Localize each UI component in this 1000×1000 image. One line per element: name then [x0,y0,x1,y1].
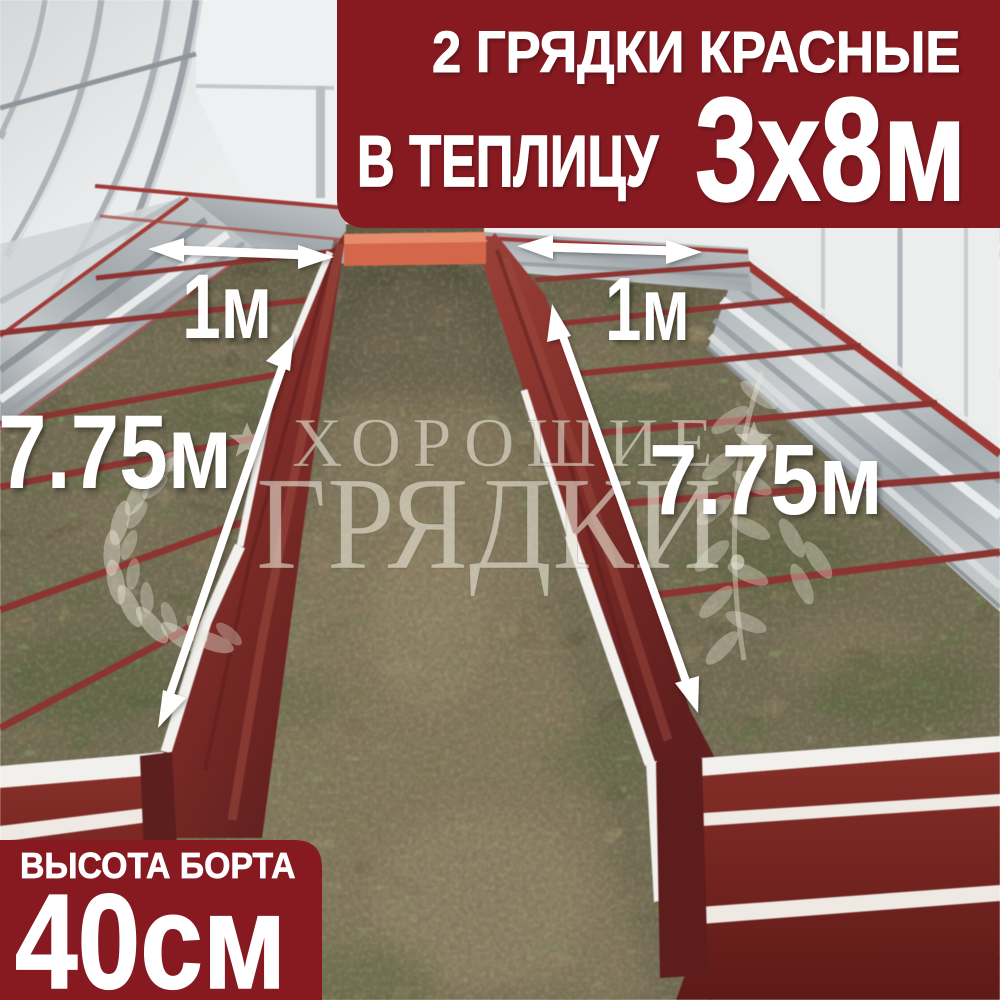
svg-text:40см: 40см [15,866,286,1000]
svg-text:В ТЕПЛИЦУ: В ТЕПЛИЦУ [357,122,659,202]
svg-text:7.75м: 7.75м [0,394,232,510]
svg-text:1м: 1м [605,259,690,360]
svg-text:3х8м: 3х8м [695,66,966,231]
svg-text:7.75м: 7.75м [649,423,883,535]
svg-text:1м: 1м [182,256,272,359]
